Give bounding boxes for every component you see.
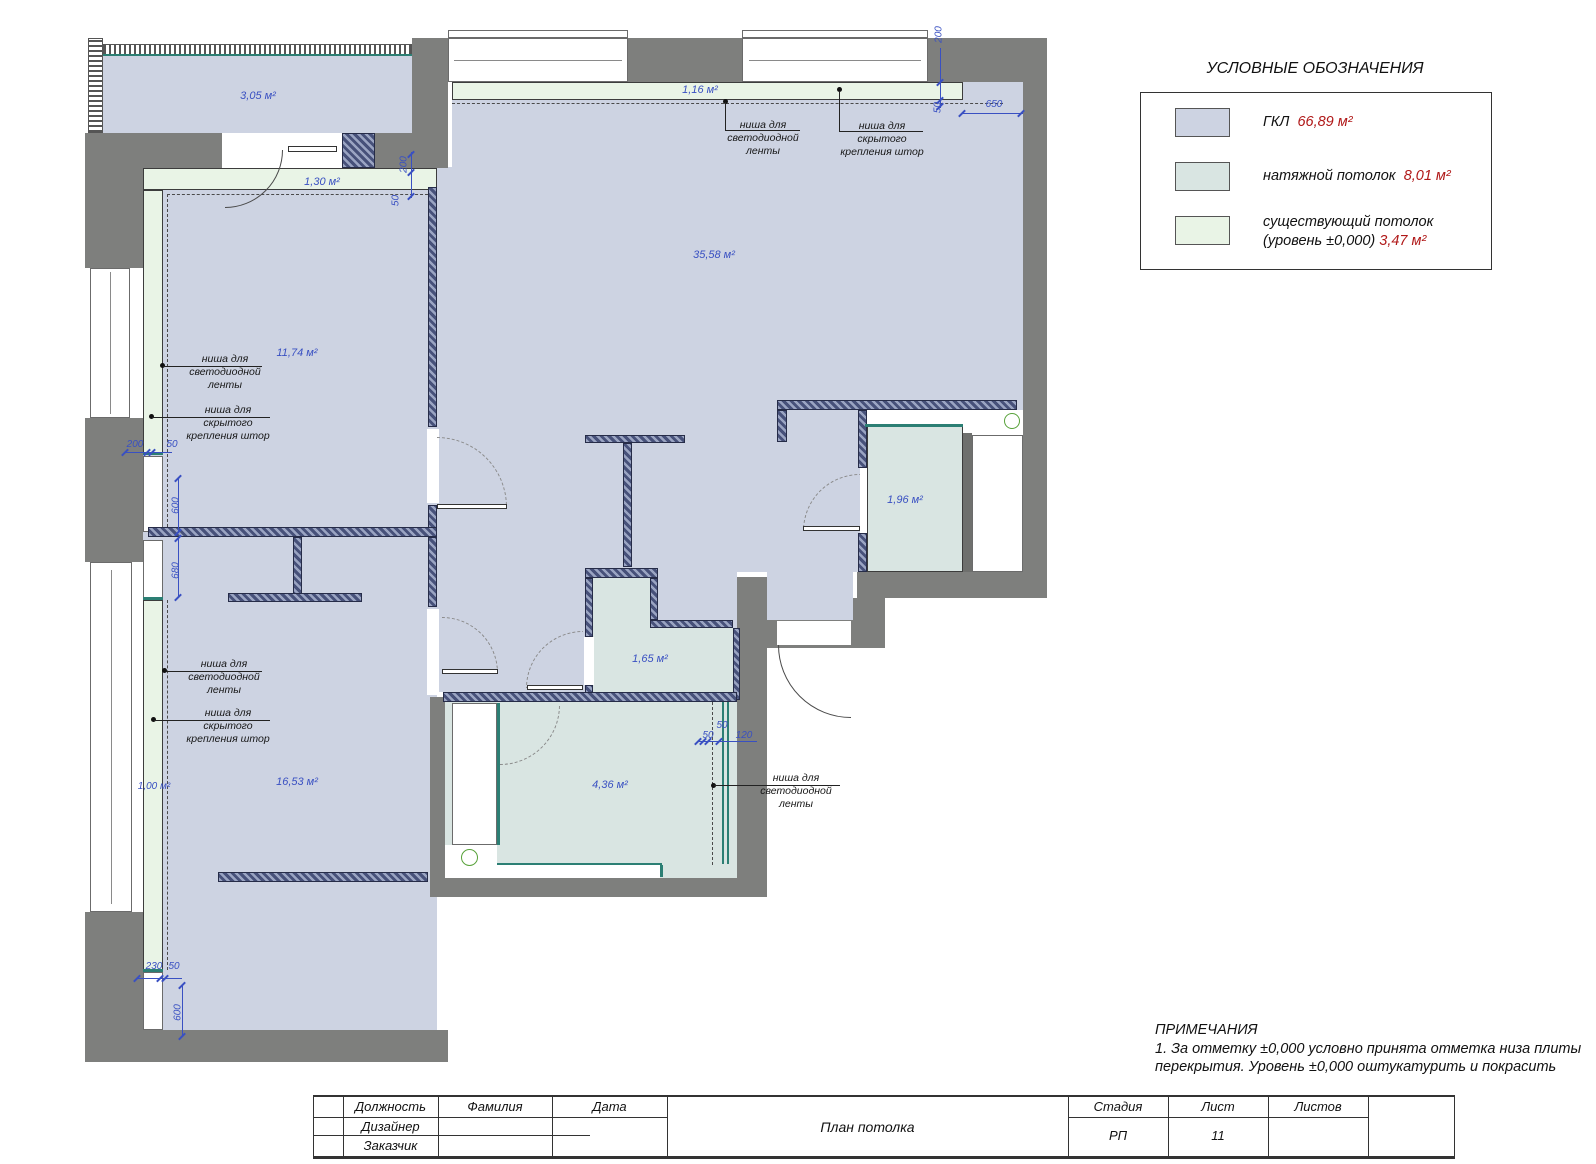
door-arc bbox=[225, 150, 283, 208]
titleblock-border bbox=[313, 1156, 1455, 1159]
niche-annotation: ниша длясветодиоднойленты bbox=[751, 772, 841, 811]
door-opening bbox=[427, 609, 439, 695]
hatched-wall bbox=[585, 568, 658, 578]
hatched-wall bbox=[228, 593, 362, 602]
door-leaf bbox=[803, 526, 860, 531]
niche-annotation: ниша длясветодиоднойленты bbox=[184, 658, 264, 697]
dimension-label: 680 bbox=[171, 556, 182, 586]
light-symbol bbox=[1004, 413, 1020, 429]
hatched-wall bbox=[428, 537, 437, 607]
hatched-wall bbox=[650, 578, 658, 620]
legend-label: (уровень ±0,000) 3,47 м² bbox=[1263, 233, 1426, 249]
notes-line: перекрытия. Уровень ±0,000 оштукатурить … bbox=[1155, 1059, 1556, 1075]
titleblock-line bbox=[313, 1135, 590, 1136]
wall-segment bbox=[928, 38, 1047, 82]
window-glass-line bbox=[454, 60, 621, 61]
ceiling-edge-line bbox=[143, 597, 163, 600]
floor-notch bbox=[497, 865, 660, 878]
window bbox=[448, 38, 628, 82]
room-area-label: 1,65 м² bbox=[615, 653, 685, 665]
notes-heading: ПРИМЕЧАНИЯ bbox=[1155, 1022, 1257, 1038]
titleblock-header-date: Дата bbox=[552, 1099, 667, 1114]
titleblock-line bbox=[313, 1117, 667, 1118]
legend-label: существующий потолок bbox=[1263, 214, 1433, 230]
titleblock-header-sheets: Листов bbox=[1268, 1099, 1368, 1114]
room-area-label: 16,53 м² bbox=[262, 776, 332, 788]
entry-door-opening bbox=[777, 621, 851, 645]
legend-swatch-stretch bbox=[1175, 162, 1230, 191]
hatched-wall bbox=[218, 872, 428, 882]
dimension-label: 600 bbox=[173, 998, 184, 1028]
titleblock-border bbox=[1454, 1095, 1455, 1157]
window bbox=[90, 268, 130, 418]
room-area-label: 11,74 м² bbox=[262, 347, 332, 359]
wall-segment bbox=[628, 38, 742, 82]
hatched-wall bbox=[585, 578, 593, 637]
hatched-wall bbox=[443, 692, 737, 702]
dimension-line bbox=[963, 113, 1023, 114]
legend-swatch-existing bbox=[1175, 216, 1230, 245]
titleblock-row-client: Заказчик bbox=[343, 1138, 438, 1153]
dimension-label: 50 bbox=[933, 93, 944, 123]
dimension-label: 200 bbox=[120, 439, 150, 450]
ceiling-edge-line bbox=[865, 424, 963, 427]
ceiling-edge-line bbox=[497, 863, 662, 865]
hatched-wall bbox=[342, 133, 375, 168]
room-area-label: 35,58 м² bbox=[679, 249, 749, 261]
duct-shaft bbox=[452, 703, 497, 845]
wall-recess bbox=[143, 540, 163, 598]
window bbox=[90, 562, 132, 912]
window-glass-line bbox=[111, 570, 112, 904]
dimension-label: 50 bbox=[693, 730, 723, 741]
room-area-label: 1,30 м² bbox=[287, 176, 357, 188]
legend-value: 3,47 м² bbox=[1379, 233, 1426, 249]
hatched-wall bbox=[623, 443, 632, 567]
window bbox=[742, 38, 928, 82]
dimension-label: 650 bbox=[979, 99, 1009, 110]
ceiling-edge-line bbox=[660, 865, 663, 877]
titleblock-line bbox=[1068, 1117, 1368, 1118]
dimension-label: 120 bbox=[729, 730, 759, 741]
dimension-label: 200 bbox=[399, 150, 410, 180]
room-living bbox=[437, 167, 1023, 410]
window-glass-line bbox=[749, 60, 922, 61]
drawing-title: План потолка bbox=[667, 1119, 1068, 1135]
door-leaf bbox=[527, 685, 583, 690]
hatched-wall bbox=[293, 537, 302, 600]
hatched-wall bbox=[585, 435, 685, 443]
wall-segment bbox=[85, 133, 143, 268]
titleblock-header-position: Должность bbox=[343, 1099, 438, 1114]
room-area-label: 4,36 м² bbox=[575, 779, 645, 791]
legend-title: УСЛОВНЫЕ ОБОЗНАЧЕНИЯ bbox=[1140, 60, 1490, 78]
room-area-label: 1,96 м² bbox=[870, 494, 940, 506]
hatched-wall bbox=[858, 410, 867, 468]
legend-value: 66,89 м² bbox=[1297, 114, 1352, 130]
ceiling-dashed-line bbox=[452, 103, 1003, 104]
legend-label: натяжной потолок 8,01 м² bbox=[1263, 168, 1451, 184]
hatched-wall bbox=[733, 628, 740, 700]
door-arc bbox=[437, 437, 507, 507]
dimension-label: 50 bbox=[391, 186, 402, 216]
balcony-rail bbox=[88, 38, 103, 133]
hatched-wall bbox=[148, 527, 437, 537]
legend-label: ГКЛ 66,89 м² bbox=[1263, 114, 1353, 130]
room-bathroom-a bbox=[593, 578, 650, 692]
ceiling-dashed-line bbox=[167, 194, 168, 527]
wall-segment bbox=[1023, 82, 1047, 598]
titleblock-line bbox=[1368, 1095, 1369, 1157]
wall-segment bbox=[412, 38, 448, 167]
ceiling-edge-line bbox=[103, 54, 412, 56]
light-symbol bbox=[461, 849, 478, 866]
room-area-label: 3,05 м² bbox=[223, 90, 293, 102]
legend-value: 8,01 м² bbox=[1404, 168, 1451, 184]
niche-annotation: ниша для скрытогокрепления штор bbox=[180, 404, 276, 443]
legend-swatch-gkl bbox=[1175, 108, 1230, 137]
door-opening bbox=[584, 637, 594, 685]
titleblock-header-sheet: Лист bbox=[1168, 1099, 1268, 1114]
niche-annotation: ниша длясветодиоднойленты bbox=[185, 353, 265, 392]
door-leaf bbox=[437, 504, 507, 509]
hatched-wall bbox=[777, 400, 1017, 410]
niche-annotation: ниша длясветодиоднойленты bbox=[723, 119, 803, 158]
wall-segment bbox=[857, 572, 1047, 598]
hatched-wall bbox=[650, 620, 733, 628]
titleblock-header-surname: Фамилия bbox=[438, 1099, 552, 1114]
duct-shaft bbox=[972, 435, 1023, 572]
door-arc bbox=[778, 645, 851, 718]
window-glass-line bbox=[110, 272, 111, 414]
hatched-wall bbox=[428, 187, 437, 427]
room-area-label: 1,00 м² bbox=[119, 781, 189, 792]
door-arc bbox=[526, 631, 583, 688]
wall-recess bbox=[143, 456, 163, 532]
hatched-wall bbox=[858, 533, 867, 572]
door-arc bbox=[442, 617, 498, 673]
wall-segment bbox=[853, 598, 885, 648]
wall-segment bbox=[85, 912, 143, 1032]
wall-divider bbox=[963, 433, 972, 572]
door-leaf bbox=[442, 669, 498, 674]
door-arc bbox=[803, 474, 860, 531]
wall-segment bbox=[85, 1030, 448, 1062]
niche-annotation: ниша для скрытогокрепления штор bbox=[836, 120, 928, 159]
window-sill bbox=[742, 30, 928, 38]
wall-segment bbox=[430, 697, 445, 897]
ceiling-dashed-line bbox=[167, 194, 428, 195]
titleblock-stage-value: РП bbox=[1068, 1128, 1168, 1143]
dimension-label: 50 bbox=[159, 961, 189, 972]
dimension-line bbox=[411, 152, 412, 198]
notes-line: 1. За отметку ±0,000 условно принята отм… bbox=[1155, 1041, 1581, 1057]
titleblock-header-stage: Стадия bbox=[1068, 1099, 1168, 1114]
titleblock-border bbox=[313, 1095, 1455, 1097]
dimension-label: 200 bbox=[934, 20, 945, 50]
room-corridor-entry bbox=[767, 572, 853, 620]
door-leaf bbox=[288, 146, 337, 152]
ceiling-plan-sheet: 200 50 200 50 650 200 50 600 680 230 50 … bbox=[0, 0, 1596, 1164]
titleblock-border bbox=[313, 1095, 314, 1157]
window-sill bbox=[448, 30, 628, 38]
room-area-label: 1,16 м² bbox=[665, 84, 735, 96]
door-arc bbox=[500, 705, 560, 765]
wall-segment bbox=[445, 878, 767, 897]
niche-annotation: ниша для скрытогокрепления штор bbox=[180, 707, 276, 746]
titleblock-row-designer: Дизайнер bbox=[343, 1119, 438, 1134]
dimension-label: 600 bbox=[171, 491, 182, 521]
hatched-wall bbox=[777, 410, 787, 442]
titleblock-sheet-value: 11 bbox=[1168, 1128, 1268, 1143]
